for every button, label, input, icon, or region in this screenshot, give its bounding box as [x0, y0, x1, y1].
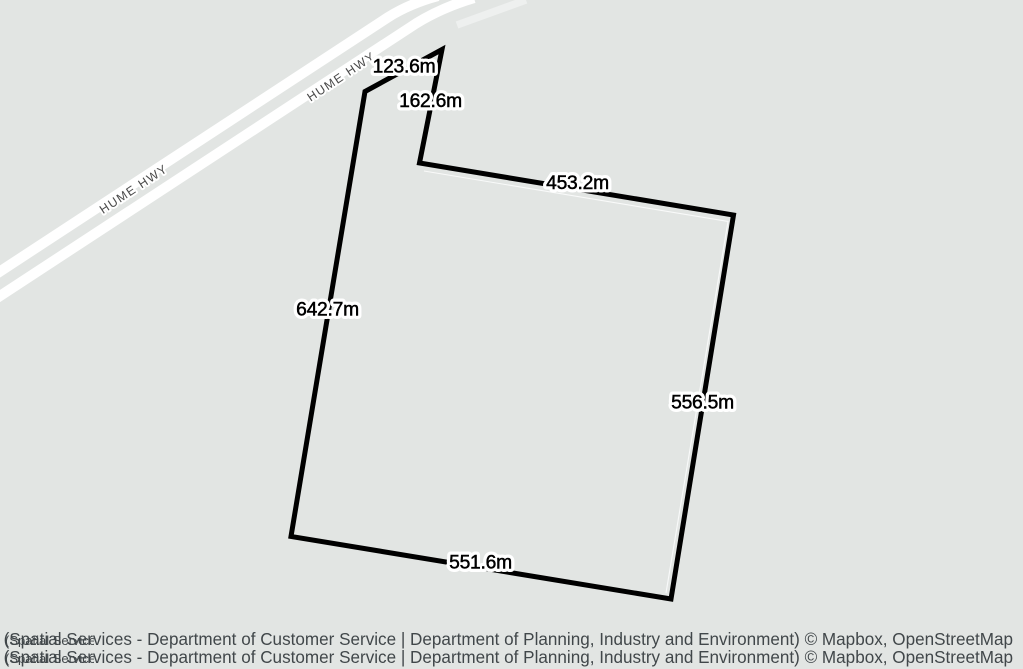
svg-text:HUME HWY: HUME HWY — [305, 49, 379, 104]
svg-text:453.2m: 453.2m — [546, 173, 609, 194]
svg-text:162.6m: 162.6m — [399, 91, 462, 112]
svg-text:642.7m: 642.7m — [296, 299, 359, 320]
svg-text:551.6m: 551.6m — [449, 552, 512, 573]
svg-text:556.5m: 556.5m — [671, 393, 734, 414]
svg-text:123.6m: 123.6m — [373, 56, 436, 77]
